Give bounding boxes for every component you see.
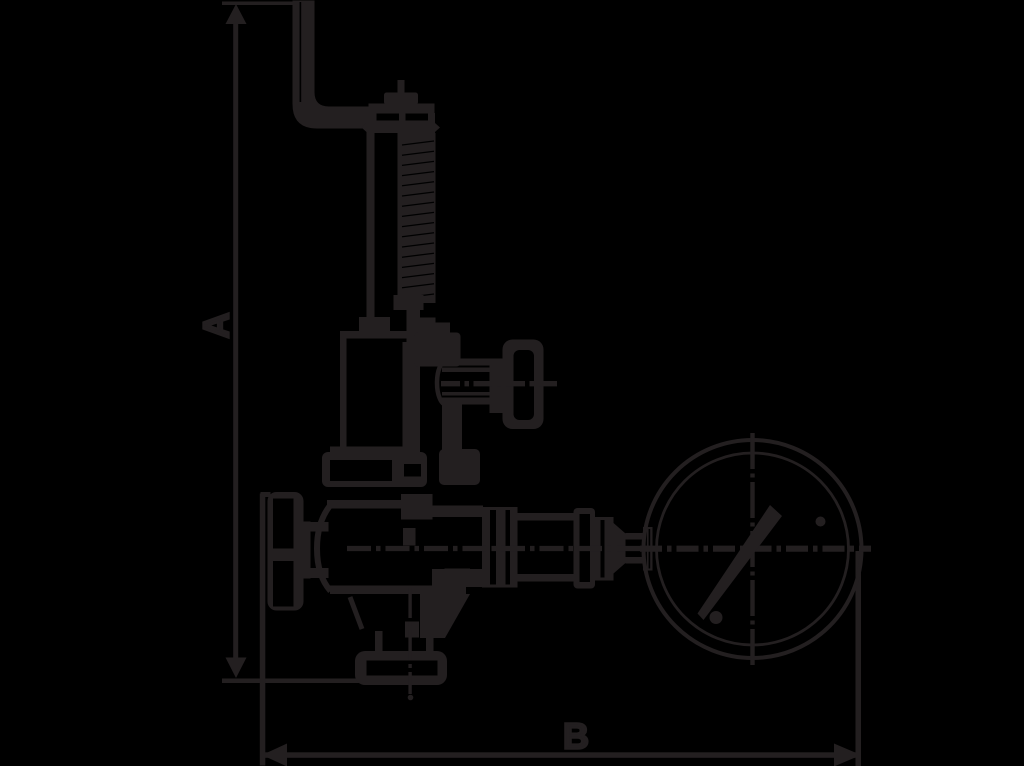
svg-text:B: B xyxy=(563,716,589,757)
svg-text:A: A xyxy=(196,313,237,339)
